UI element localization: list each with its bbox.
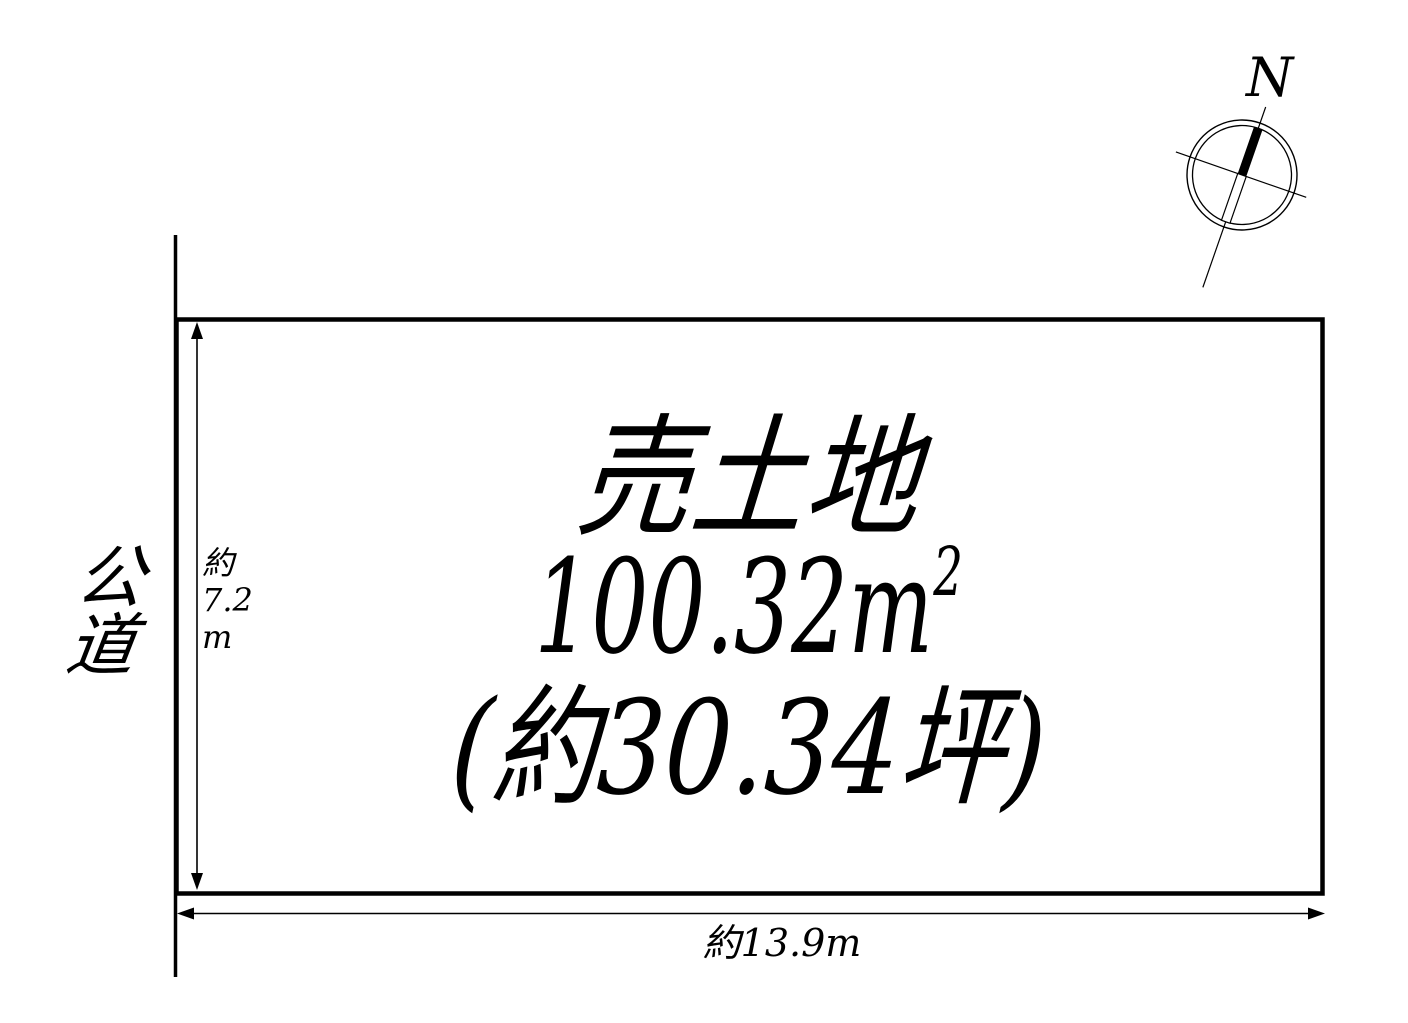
plot-area-tsubo: (約30.34坪)	[448, 680, 1050, 817]
plot-title-row: 売土地	[176, 410, 1322, 549]
road-label-char-1: 公	[72, 545, 150, 613]
compass-north-label: N	[1246, 50, 1293, 107]
width-dimension-label: 約13.9m	[703, 924, 862, 964]
width-dimension-arrow	[177, 908, 1325, 920]
plot-area-tsubo-row: (約30.34坪)	[176, 680, 1322, 817]
compass-needle-north	[1238, 127, 1263, 177]
compass-needle-south	[1221, 174, 1246, 224]
plot-title: 売土地	[572, 410, 925, 549]
plot-area-row: 100.32m2	[176, 539, 1322, 676]
plot-area-exponent: 2	[934, 532, 964, 611]
compass-icon	[1137, 84, 1330, 310]
plot-area-value: 100.32m	[535, 531, 934, 683]
land-plot-diagram: N 公 道 約 7.2 m 売土地 100.32m2 (約30.34坪) 約13…	[0, 0, 1408, 1023]
road-label-char-2: 道	[62, 613, 140, 681]
plot-area-m2: 100.32m2	[535, 539, 964, 676]
